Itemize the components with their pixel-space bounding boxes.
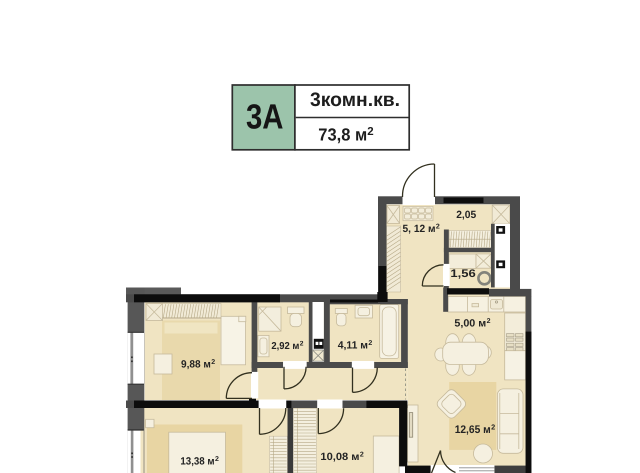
svg-text:4,11 м: 4,11 м	[338, 340, 369, 352]
svg-text:3комн.кв.: 3комн.кв.	[310, 89, 400, 111]
svg-text:12,65 м: 12,65 м	[455, 424, 491, 436]
svg-text:2,05: 2,05	[456, 209, 476, 221]
svg-text:2: 2	[211, 359, 215, 366]
svg-text:5,00 м: 5,00 м	[454, 318, 486, 330]
svg-text:2: 2	[491, 422, 495, 431]
svg-text:2: 2	[436, 223, 440, 230]
svg-text:9,88 м: 9,88 м	[181, 359, 211, 371]
svg-text:3А: 3А	[246, 97, 284, 136]
svg-text:13,38 м: 13,38 м	[180, 456, 214, 468]
svg-text:2: 2	[300, 341, 304, 348]
svg-text:2: 2	[487, 318, 491, 325]
svg-text:2,92 м: 2,92 м	[271, 341, 299, 352]
svg-text:2: 2	[360, 451, 364, 458]
svg-text:5, 12 м: 5, 12 м	[403, 223, 436, 235]
svg-text:10,08 м: 10,08 м	[320, 451, 359, 463]
svg-text:1,56: 1,56	[450, 268, 475, 280]
svg-text:73,8 м2: 73,8 м2	[318, 124, 373, 144]
svg-text:2: 2	[368, 340, 372, 347]
svg-text:2: 2	[215, 456, 219, 463]
